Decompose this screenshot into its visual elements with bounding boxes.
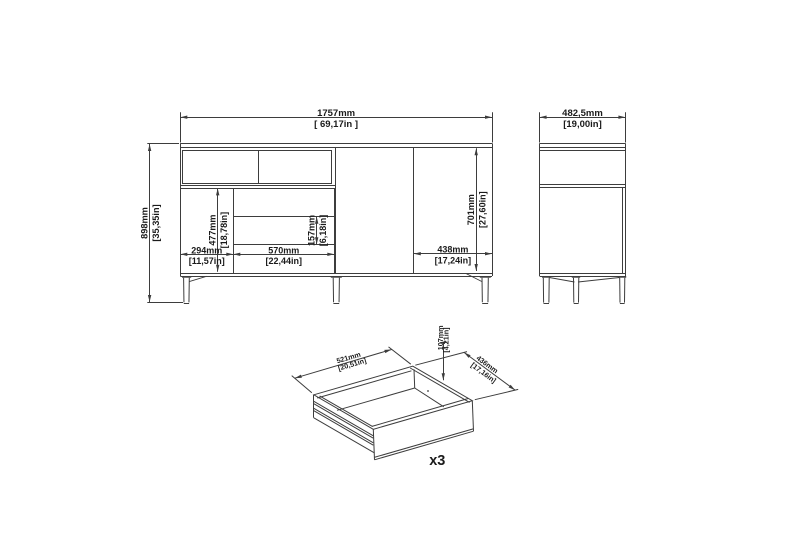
svg-text:[ 69,17in ]: [ 69,17in ]: [314, 119, 358, 130]
svg-text:[27,60in]: [27,60in]: [477, 191, 487, 228]
svg-text:294mm: 294mm: [191, 245, 222, 255]
svg-text:477mm: 477mm: [208, 215, 218, 246]
svg-text:[19,00in]: [19,00in]: [563, 119, 602, 130]
svg-text:[17,24in]: [17,24in]: [435, 255, 472, 265]
svg-text:482,5mm: 482,5mm: [562, 108, 603, 119]
svg-text:[35,35in]: [35,35in]: [151, 204, 161, 241]
svg-text:438mm: 438mm: [437, 245, 468, 255]
svg-text:570mm: 570mm: [268, 245, 299, 255]
svg-text:[6,18in]: [6,18in]: [318, 215, 328, 247]
svg-text:1757mm: 1757mm: [317, 108, 355, 119]
svg-text:[11,57in]: [11,57in]: [189, 256, 225, 266]
svg-text:[22,44in]: [22,44in]: [266, 256, 303, 266]
svg-text:701mm: 701mm: [466, 194, 476, 225]
svg-text:898mm: 898mm: [139, 207, 149, 239]
svg-text:[4,21in]: [4,21in]: [442, 327, 451, 352]
svg-text:157mm: 157mm: [307, 215, 317, 246]
svg-text:x3: x3: [429, 453, 445, 469]
svg-text:[18,78in]: [18,78in]: [219, 212, 229, 249]
